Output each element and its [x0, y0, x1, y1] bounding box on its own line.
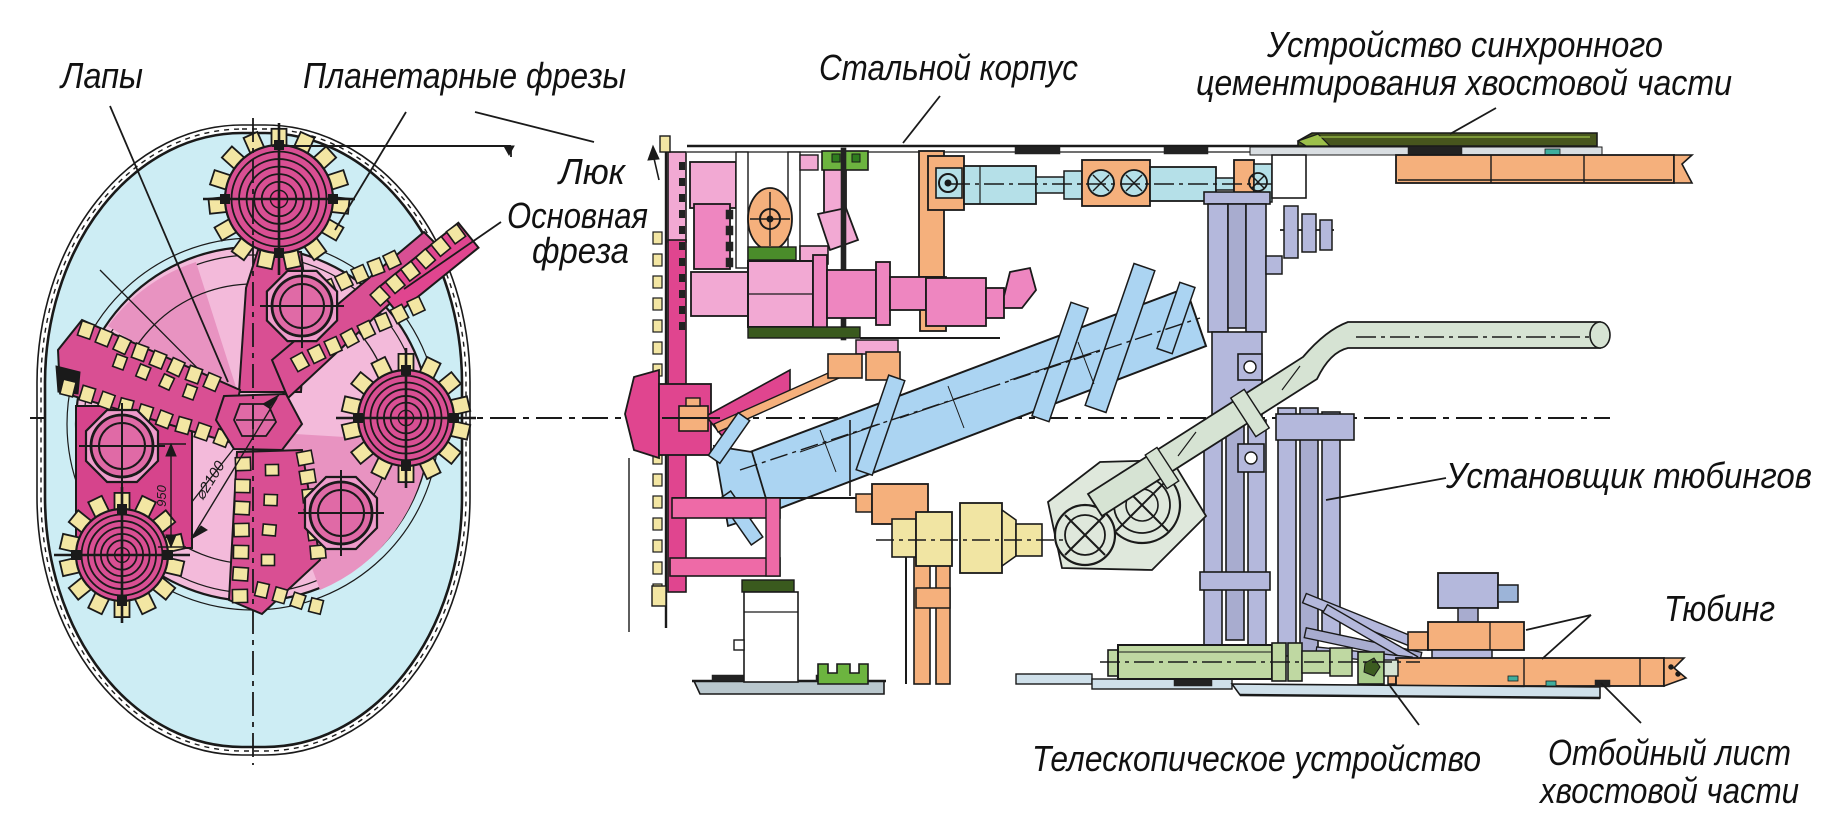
svg-text:Люк: Люк — [557, 151, 627, 192]
svg-text:Планетарные фрезы: Планетарные фрезы — [303, 55, 626, 96]
svg-text:фреза: фреза — [532, 230, 629, 271]
svg-text:950: 950 — [154, 484, 169, 506]
svg-text:Лапы: Лапы — [59, 55, 143, 96]
svg-text:цементирования хвостовой части: цементирования хвостовой части — [1196, 62, 1732, 103]
svg-text:Устройство синхронного: Устройство синхронного — [1266, 24, 1663, 65]
svg-text:хвостовой части: хвостовой части — [1538, 770, 1799, 811]
svg-text:Тюбинг: Тюбинг — [1664, 588, 1775, 629]
svg-text:Стальной корпус: Стальной корпус — [819, 47, 1078, 88]
svg-text:Отбойный лист: Отбойный лист — [1548, 732, 1791, 773]
svg-text:Телескопическое устройство: Телескопическое устройство — [1032, 738, 1481, 779]
svg-text:Установщик тюбингов: Установщик тюбингов — [1445, 455, 1812, 496]
